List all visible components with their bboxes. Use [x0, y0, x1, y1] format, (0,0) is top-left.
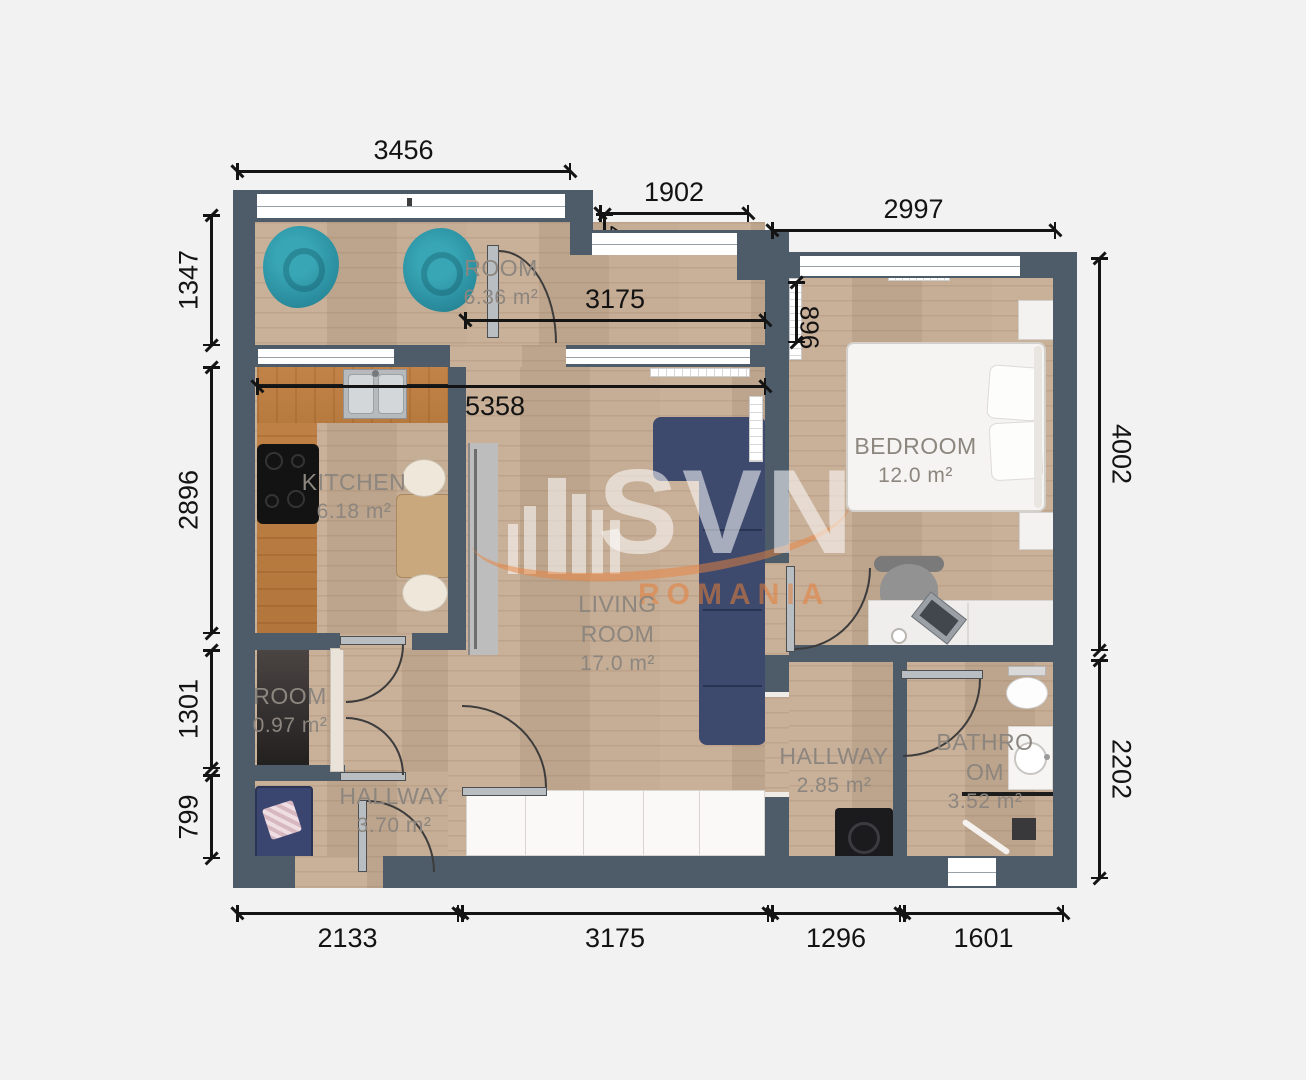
dimension-bottom-hall-width: 1296: [772, 912, 900, 915]
room-label-kitchen: KITCHEN 6.18 m²: [298, 468, 410, 525]
wall: [233, 765, 345, 781]
wall: [233, 345, 255, 880]
entry-bench: [255, 786, 313, 866]
room-label-bedroom: BEDROOM 12.0 m²: [853, 432, 978, 489]
door-leaf: [462, 787, 547, 796]
dimension-niche-width: 1902: [600, 212, 748, 215]
room-label-living: LIVING ROOM 17.0 m²: [540, 590, 695, 677]
room-label-closet: ROOM 0.97 m²: [238, 682, 342, 739]
floor-plan: SVN ROMANIA ROOM 6.36 m² KITCHEN 6.18 m²…: [0, 0, 1306, 1080]
dimension-bottom-left-width: 2133: [237, 912, 458, 915]
wall: [448, 360, 466, 640]
toilet: [1008, 666, 1046, 676]
toilet: [1006, 677, 1048, 709]
dimension-balcony-width: 3456: [237, 170, 570, 173]
dimension-entry-height: 799: [210, 775, 213, 858]
door-jamb: [765, 692, 789, 697]
dimension-bedroom-radiator: 896: [795, 282, 798, 342]
room-label-balcony: ROOM 6.36 m²: [440, 254, 562, 311]
dimension-bottom-living-width: 3175: [462, 912, 768, 915]
watermark-brand: SVN: [598, 452, 857, 572]
room-label-hallway-main: HALLWAY 3.70 m²: [338, 782, 450, 839]
room-label-bathroom: BATHROOM 3.52 m²: [933, 728, 1037, 815]
kitchen-sink: [343, 369, 407, 419]
dimension-living-total-width: 5358: [257, 385, 765, 388]
dimension-balcony-height: 1347: [210, 215, 213, 345]
dimension-bottom-bath-width: 1601: [904, 912, 1063, 915]
pillow: [262, 800, 302, 840]
window: [948, 858, 996, 886]
window: [566, 349, 750, 364]
wall: [1053, 252, 1077, 880]
window: [257, 194, 565, 218]
desk-stool: [891, 628, 907, 644]
dimension-bedroom-width: 2997: [772, 229, 1055, 232]
door-leaf: [340, 636, 406, 645]
dimension-closet-height: 1301: [210, 650, 213, 768]
nightstand: [1018, 300, 1054, 340]
window: [592, 233, 737, 255]
window: [800, 256, 1020, 276]
dimension-kitchen-height: 2896: [210, 367, 213, 633]
chair: [402, 574, 448, 612]
nightstand: [1019, 512, 1054, 550]
faucet: [1044, 754, 1050, 760]
opening-balcony-door: [450, 345, 566, 367]
dimension-bedroom-height: 4002: [1098, 258, 1101, 650]
bathroom-cabinet: [1012, 818, 1036, 840]
room-label-hallway-night: HALLWAY 2.85 m²: [778, 742, 890, 799]
wardrobe-cabinet: [466, 790, 765, 856]
radiator: [650, 368, 750, 377]
door-leaf: [901, 670, 983, 679]
wall: [233, 190, 255, 367]
window: [258, 349, 394, 364]
dimension-bath-height: 2202: [1098, 660, 1101, 878]
dimension-upper-living-width: 3175: [465, 319, 765, 322]
